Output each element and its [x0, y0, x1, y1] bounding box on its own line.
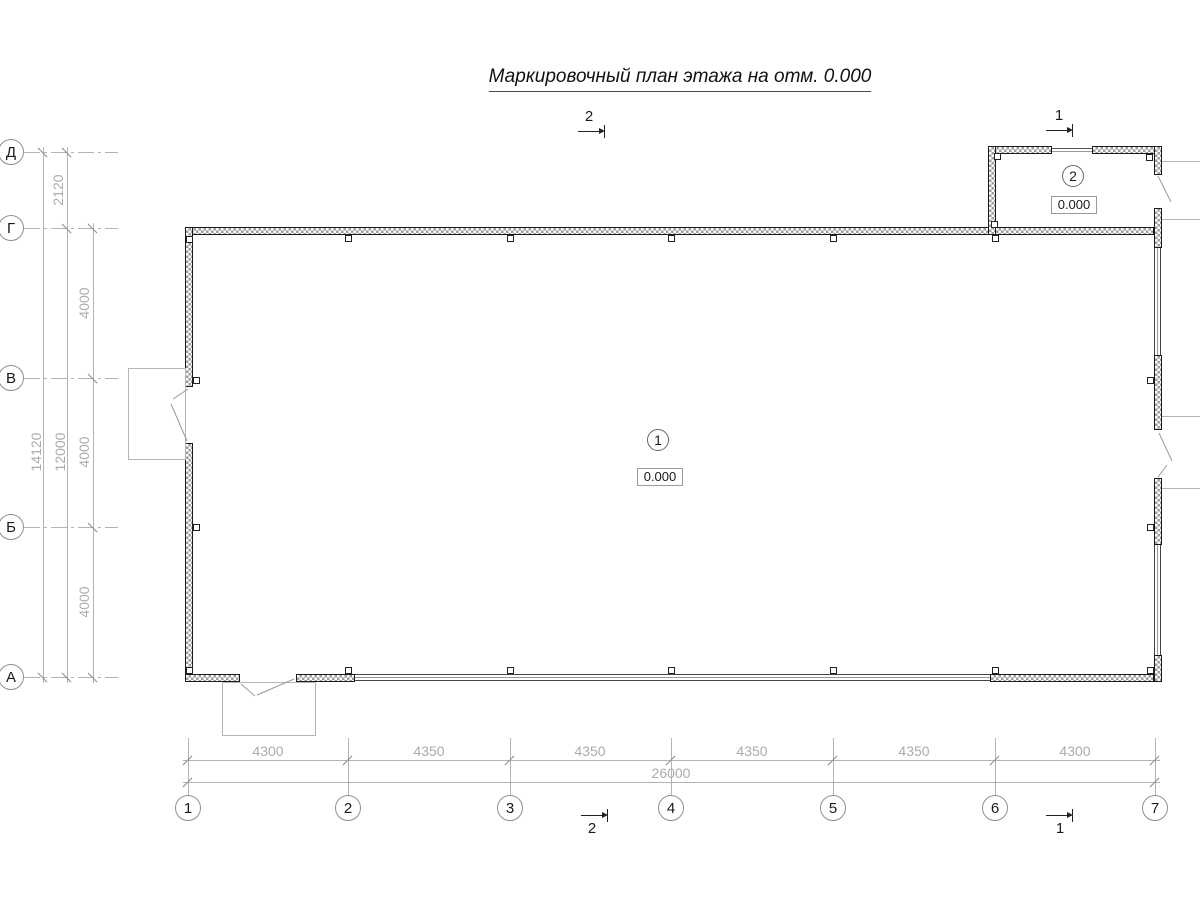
floor-plan-drawing: Маркировочный план этажа на отм. 0.000 2… — [0, 0, 1200, 900]
room-2-number: 2 — [1069, 168, 1077, 184]
door-leaf-bottom-1 — [241, 684, 255, 696]
room-2-elevation: 0.000 — [1051, 196, 1097, 214]
room-1-elevation: 0.000 — [637, 468, 683, 486]
door-leaf-left-2 — [171, 404, 187, 441]
door-leaf-annex — [1158, 176, 1171, 202]
door-leaf-left-1 — [173, 389, 188, 399]
door-leaf-right-1 — [1159, 433, 1172, 461]
room-2-marker: 2 — [1062, 165, 1084, 187]
room-1-marker: 1 — [647, 429, 669, 451]
door-leaf-right-2 — [1158, 465, 1167, 477]
door-swing-lines — [0, 0, 1200, 900]
room-1-number: 1 — [654, 432, 662, 448]
door-leaf-bottom-2 — [257, 679, 294, 695]
